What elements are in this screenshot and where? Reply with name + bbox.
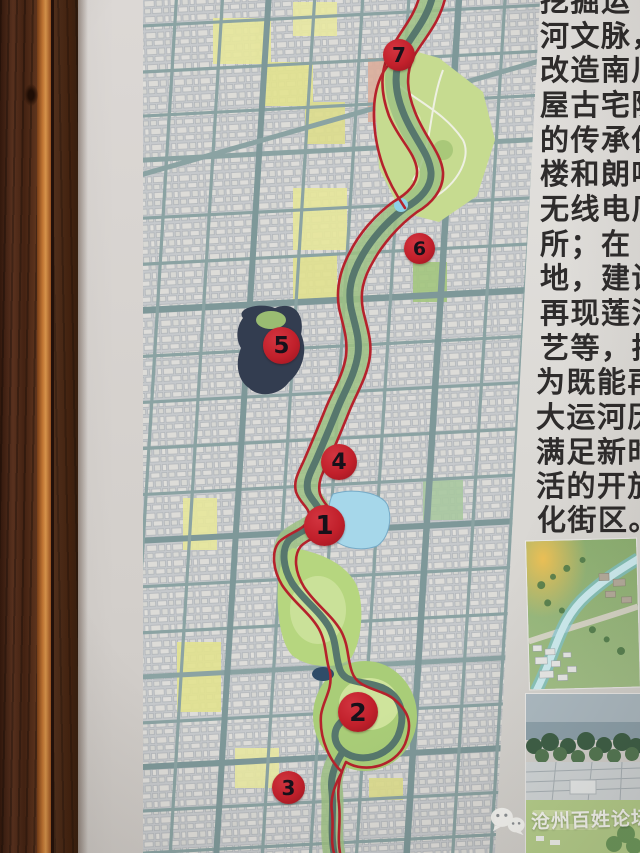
wechat-icon [489,806,526,837]
lake-cyan [329,491,390,549]
wood-frame-trim [37,0,51,853]
wood-frame-plank-left [0,0,37,853]
wood-frame-plank-right [54,0,78,853]
watermark-text: 沧州百姓论坛 [531,803,640,834]
frame-shadow [78,0,88,853]
watermark: 沧州百姓论坛 [489,801,640,837]
map-render [143,0,543,853]
inset-render-top [526,539,640,690]
wood-knot [24,84,38,106]
poster-left-margin [78,0,148,853]
